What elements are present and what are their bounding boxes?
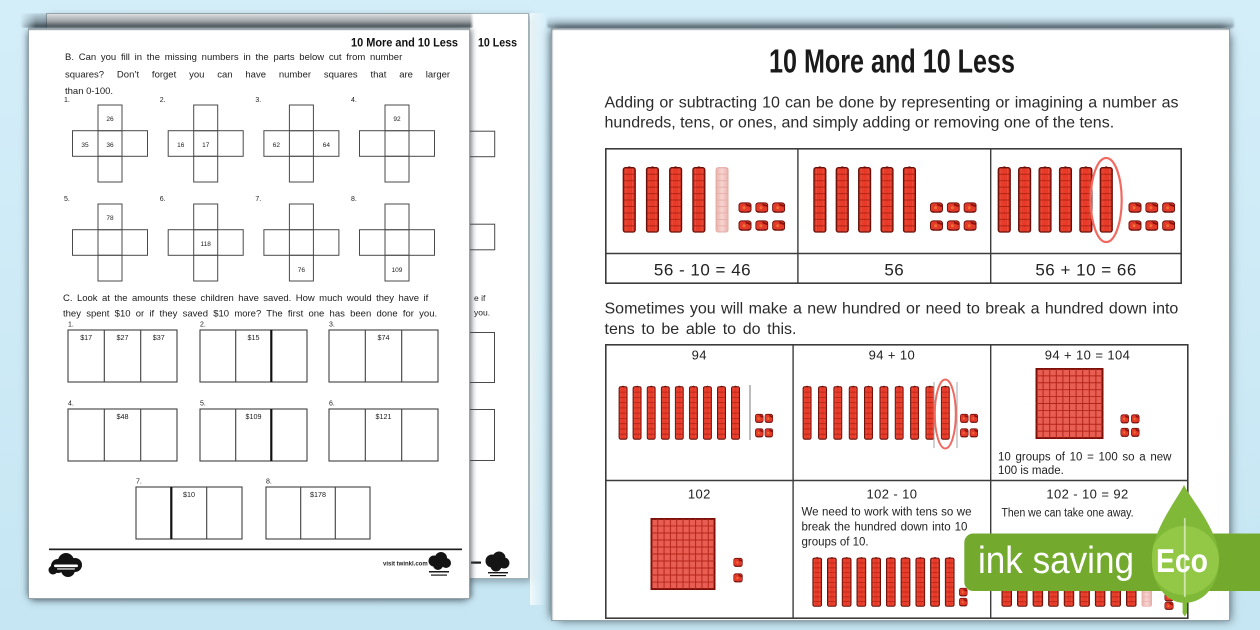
svg-text:36: 36 — [106, 142, 114, 149]
svg-text:$48: $48 — [117, 412, 129, 421]
svg-text:78: 78 — [106, 215, 114, 222]
svg-text:$17: $17 — [80, 333, 92, 342]
svg-text:C. Look at the amounts these c: C. Look at the amounts these children ha… — [63, 293, 429, 304]
svg-text:squares? Don’t forget you can: squares? Don’t forget you can have numbe… — [65, 70, 450, 81]
svg-text:10 More and 10 Less: 10 More and 10 Less — [769, 43, 1015, 80]
svg-text:56 - 10 = 46: 56 - 10 = 46 — [653, 260, 750, 279]
svg-text:Sometimes you will make a new: Sometimes you will make a new hundred or… — [605, 301, 1179, 318]
svg-text:3.: 3. — [255, 97, 261, 104]
svg-text:they spent $10 or if they save: they spent $10 or if they saved $10 more… — [63, 309, 437, 320]
svg-text:you.: you. — [474, 308, 490, 318]
svg-text:8.: 8. — [266, 479, 272, 486]
svg-text:ink saving: ink saving — [978, 540, 1134, 582]
svg-text:hundreds, tens, or ones, and s: hundreds, tens, or ones, and simply addi… — [605, 114, 1115, 131]
svg-text:e if: e if — [474, 293, 486, 303]
svg-text:B. Can you fill in the missing: B. Can you fill in the missing numbers i… — [65, 52, 402, 63]
svg-text:2.: 2. — [200, 322, 206, 329]
svg-text:5.: 5. — [64, 196, 70, 203]
svg-text:7.: 7. — [255, 196, 261, 203]
svg-text:16: 16 — [177, 142, 185, 149]
svg-text:26: 26 — [106, 116, 114, 123]
svg-text:7.: 7. — [136, 479, 142, 486]
svg-text:102: 102 — [687, 487, 710, 502]
svg-text:8.: 8. — [351, 196, 357, 203]
svg-text:102 - 10: 102 - 10 — [866, 487, 917, 502]
svg-text:6.: 6. — [160, 196, 166, 203]
svg-text:64: 64 — [323, 142, 331, 149]
svg-text:94 + 10 = 104: 94 + 10 = 104 — [1044, 348, 1129, 363]
svg-text:118: 118 — [201, 241, 212, 248]
svg-text:56 + 10 = 66: 56 + 10 = 66 — [1035, 260, 1136, 279]
svg-text:$37: $37 — [153, 333, 165, 342]
svg-text:10 Less: 10 Less — [478, 38, 517, 50]
svg-text:Eco: Eco — [1156, 542, 1208, 579]
svg-text:3.: 3. — [329, 322, 335, 329]
svg-text:76: 76 — [298, 267, 306, 274]
svg-text:94: 94 — [691, 348, 706, 363]
svg-text:$178: $178 — [310, 490, 326, 499]
svg-text:$10: $10 — [183, 490, 195, 499]
svg-text:109: 109 — [392, 267, 403, 274]
svg-text:35: 35 — [81, 142, 89, 149]
svg-text:2.: 2. — [160, 97, 166, 104]
svg-text:1.: 1. — [64, 97, 70, 104]
svg-text:$121: $121 — [376, 412, 392, 421]
svg-text:5.: 5. — [200, 401, 206, 408]
svg-text:62: 62 — [273, 142, 281, 149]
svg-text:$15: $15 — [248, 333, 260, 342]
svg-text:56: 56 — [884, 260, 904, 279]
svg-text:94 + 10: 94 + 10 — [868, 348, 915, 363]
svg-text:visit twinkl.com: visit twinkl.com — [383, 562, 428, 568]
svg-text:10 More and 10 Less: 10 More and 10 Less — [351, 38, 458, 50]
svg-text:groups of 10.: groups of 10. — [801, 537, 868, 549]
svg-text:$109: $109 — [246, 412, 262, 421]
svg-text:4.: 4. — [351, 97, 357, 104]
svg-text:than 0-100.: than 0-100. — [65, 86, 113, 97]
svg-text:Adding or subtracting 10 can b: Adding or subtracting 10 can be done by … — [605, 94, 1179, 111]
svg-text:17: 17 — [202, 142, 210, 149]
svg-text:tens to be able to do this.: tens to be able to do this. — [605, 321, 797, 338]
svg-text:$27: $27 — [117, 333, 129, 342]
svg-text:92: 92 — [393, 116, 401, 123]
svg-text:6.: 6. — [329, 401, 335, 408]
svg-text:4.: 4. — [68, 401, 74, 408]
svg-text:1.: 1. — [68, 322, 74, 329]
svg-text:$74: $74 — [378, 333, 390, 342]
